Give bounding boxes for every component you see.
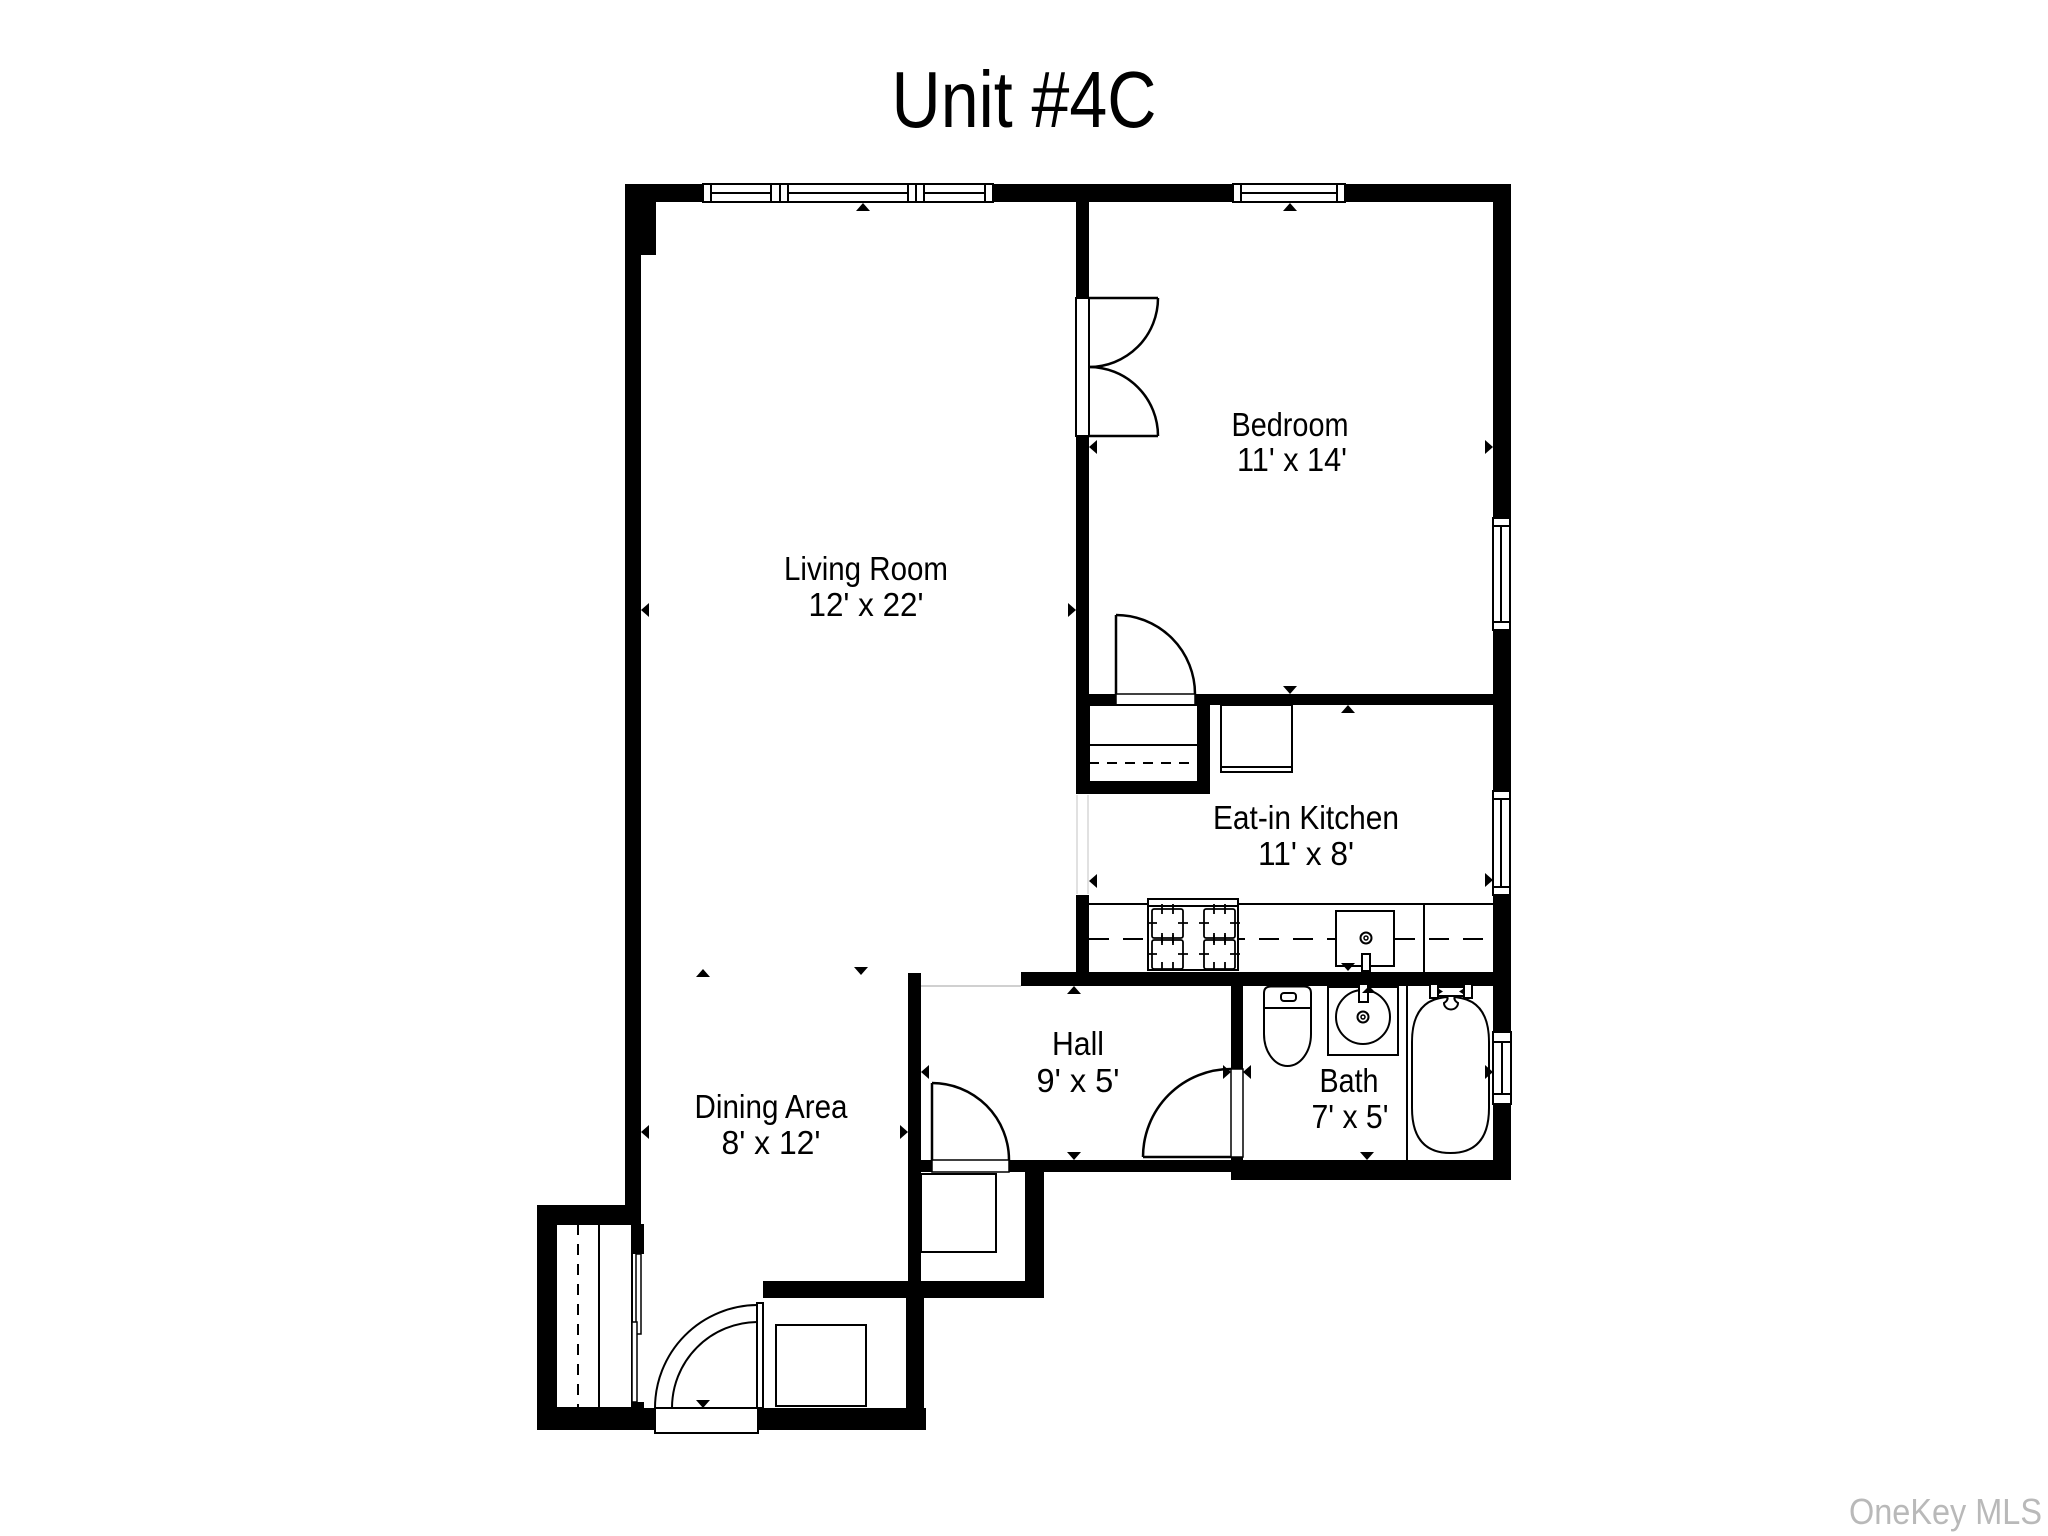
svg-text:9' x 5': 9' x 5' (1037, 1062, 1120, 1099)
svg-text:OneKey MLS: OneKey MLS (1849, 1491, 2042, 1532)
svg-text:Bath: Bath (1320, 1062, 1379, 1099)
svg-text:Dining Area: Dining Area (695, 1088, 849, 1125)
svg-text:11' x 8': 11' x 8' (1258, 835, 1354, 872)
svg-text:Eat-in Kitchen: Eat-in Kitchen (1213, 799, 1399, 836)
svg-text:Hall: Hall (1052, 1025, 1104, 1062)
svg-text:Living Room: Living Room (784, 550, 948, 587)
svg-text:Bedroom: Bedroom (1232, 406, 1349, 443)
svg-text:7' x 5': 7' x 5' (1312, 1098, 1389, 1135)
svg-text:12' x 22': 12' x 22' (809, 586, 924, 623)
svg-text:11' x 14': 11' x 14' (1237, 441, 1347, 478)
svg-text:8' x 12': 8' x 12' (722, 1124, 821, 1161)
svg-text:Unit #4C: Unit #4C (892, 55, 1157, 144)
